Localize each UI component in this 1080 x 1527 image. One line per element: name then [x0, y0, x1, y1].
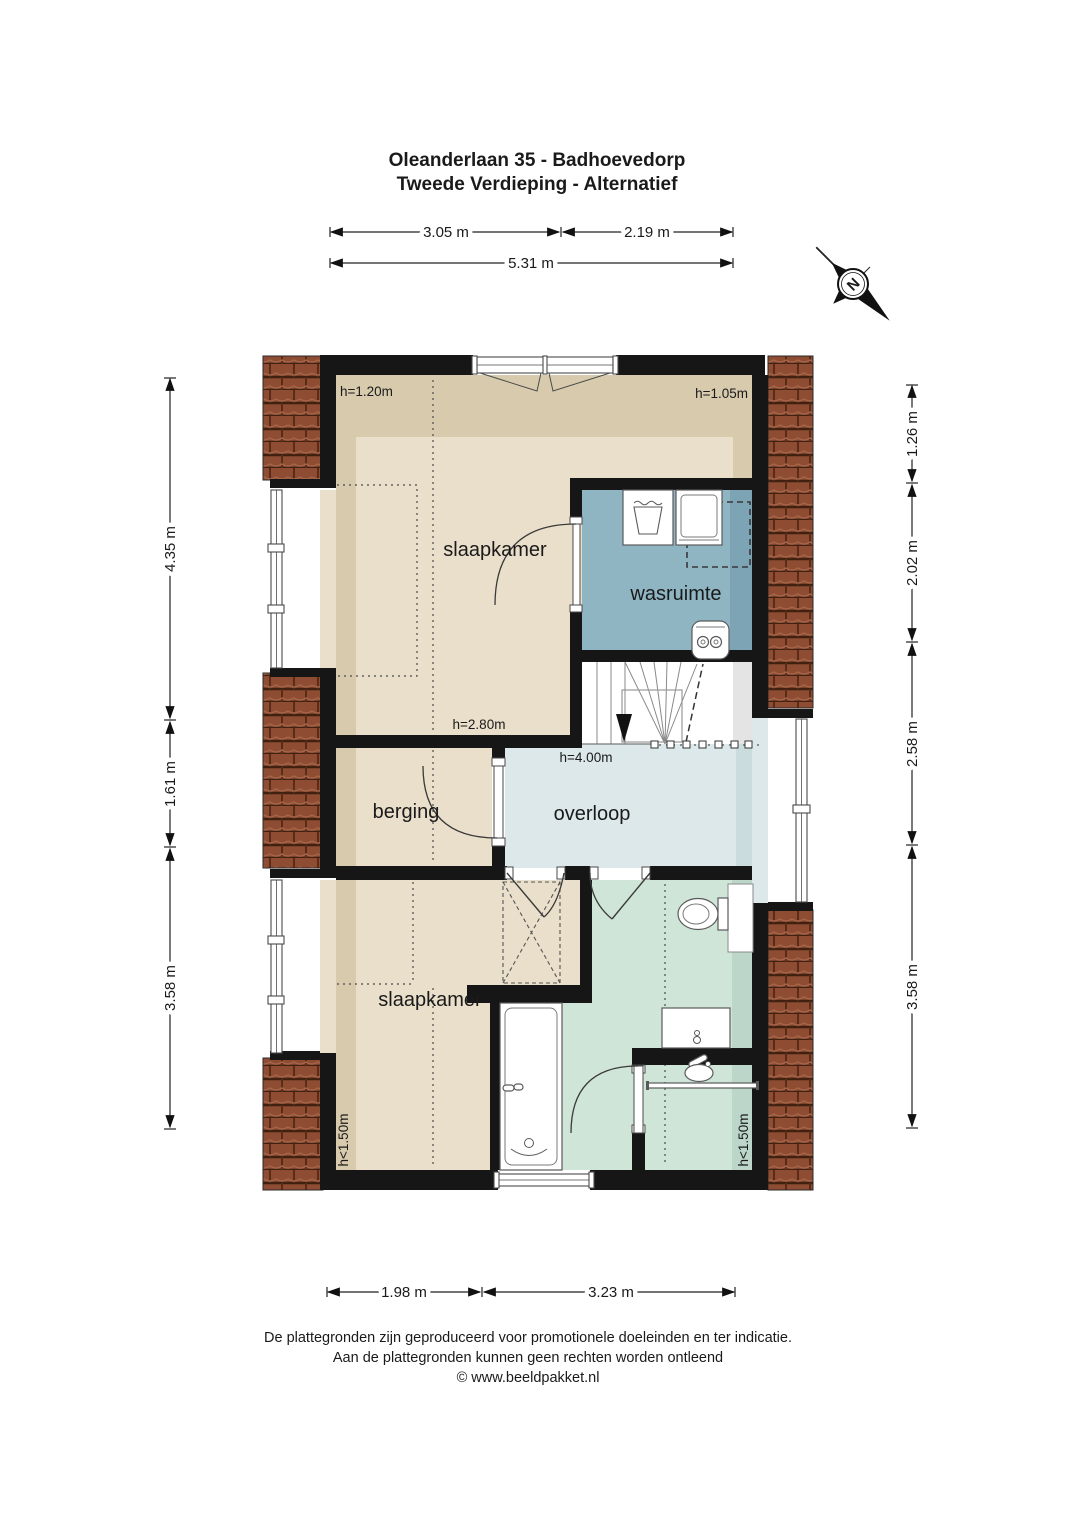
washing-machine-icon — [676, 490, 722, 545]
dim-right-4: 3.58 m — [904, 964, 921, 1010]
boiler-icon — [692, 621, 729, 659]
footer-line1: De plattegronden zijn geproduceerd voor … — [264, 1330, 792, 1346]
floor-plan-page: Oleanderlaan 35 - Badhoevedorp Tweede Ve… — [0, 0, 1080, 1527]
dormer-window-icon — [793, 719, 810, 902]
height-label-top-left: h=1.20m — [340, 384, 393, 399]
dimension-lines-left: 4.35 m 1.61 m 3.58 m — [162, 378, 179, 1129]
dim-right-2: 2.02 m — [904, 540, 921, 586]
height-label-top-right: h=1.05m — [695, 386, 748, 401]
page-title-line1: Oleanderlaan 35 - Badhoevedorp — [389, 150, 686, 171]
dim-bottom-1: 1.98 m — [381, 1284, 427, 1301]
bathtub-icon — [500, 1003, 562, 1170]
dim-top-total: 5.31 m — [508, 255, 554, 272]
laundry-tub-icon — [623, 490, 673, 545]
dim-right-3: 2.58 m — [904, 721, 921, 767]
dim-left-3: 3.58 m — [162, 965, 179, 1011]
room-label-landing: overloop — [554, 803, 631, 825]
dim-right-1: 1.26 m — [904, 411, 921, 457]
footer-line3: © www.beeldpakket.nl — [457, 1370, 600, 1386]
footer-line2: Aan de plattegronden kunnen geen rechten… — [333, 1350, 723, 1366]
room-label-laundry: wasruimte — [629, 583, 721, 605]
dim-left-1: 4.35 m — [162, 526, 179, 572]
room-label-storage: berging — [373, 801, 440, 823]
dimension-lines-top: 3.05 m 2.19 m 5.31 m — [330, 224, 733, 272]
dim-bottom-2: 3.23 m — [588, 1284, 634, 1301]
height-label-storage: h=2.80m — [453, 717, 506, 732]
floor-plan-drawing: Oleanderlaan 35 - Badhoevedorp Tweede Ve… — [0, 0, 1080, 1527]
dormer-window-icon — [268, 880, 284, 1053]
height-label-landing: h=4.00m — [560, 750, 613, 765]
dimension-lines-bottom: 1.98 m 3.23 m — [327, 1284, 735, 1301]
height-label-bottom-right: h<1.50m — [736, 1114, 751, 1167]
room-label-bedroom-top: slaapkamer — [443, 539, 547, 561]
page-title-line2: Tweede Verdieping - Alternatief — [397, 174, 679, 195]
dimension-lines-right: 1.26 m 2.02 m 2.58 m 3.58 m — [904, 385, 921, 1128]
dim-top-1: 3.05 m — [423, 224, 469, 241]
dim-left-2: 1.61 m — [162, 761, 179, 807]
height-label-bottom-left: h<1.50m — [336, 1114, 351, 1167]
vanity-table-icon — [662, 1008, 730, 1048]
room-label-bedroom-bottom: slaapkamer — [378, 989, 482, 1011]
compass-icon: N — [796, 230, 906, 340]
bottom-window-icon — [494, 1172, 594, 1188]
dim-top-2: 2.19 m — [624, 224, 670, 241]
footer-disclaimer: De plattegronden zijn geproduceerd voor … — [264, 1330, 792, 1386]
dormer-window-icon — [268, 490, 284, 668]
